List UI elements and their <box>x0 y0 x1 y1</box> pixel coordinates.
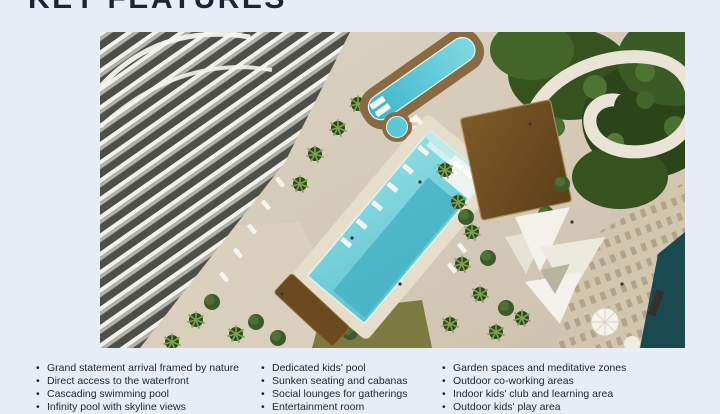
feature-item: Grand statement arrival framed by nature <box>34 362 239 375</box>
feature-item: Indoor kids' club and learning area <box>440 388 626 401</box>
feature-item: Outdoor co-working areas <box>440 375 626 388</box>
feature-column-gardens: Garden spaces and meditative zones Outdo… <box>440 362 626 414</box>
feature-item: Sunken seating and cabanas <box>259 375 407 388</box>
feature-item: Garden spaces and meditative zones <box>440 362 626 375</box>
feature-item: Cascading swimming pool <box>34 388 239 401</box>
hero-image <box>100 32 685 348</box>
feature-item: Outdoor kids' play area <box>440 401 626 414</box>
feature-item: Direct access to the waterfront <box>34 375 239 388</box>
feature-item: Social lounges for gatherings <box>259 388 407 401</box>
feature-column-arrival: Grand statement arrival framed by nature… <box>34 362 239 414</box>
aerial-render-illustration <box>100 32 685 348</box>
feature-item: Dedicated kids' pool <box>259 362 407 375</box>
feature-item: Entertainment room <box>259 401 407 414</box>
feature-item: Infinity pool with skyline views <box>34 401 239 414</box>
page-title: KEY FEATURES <box>28 0 287 14</box>
feature-column-leisure: Dedicated kids' pool Sunken seating and … <box>259 362 407 414</box>
